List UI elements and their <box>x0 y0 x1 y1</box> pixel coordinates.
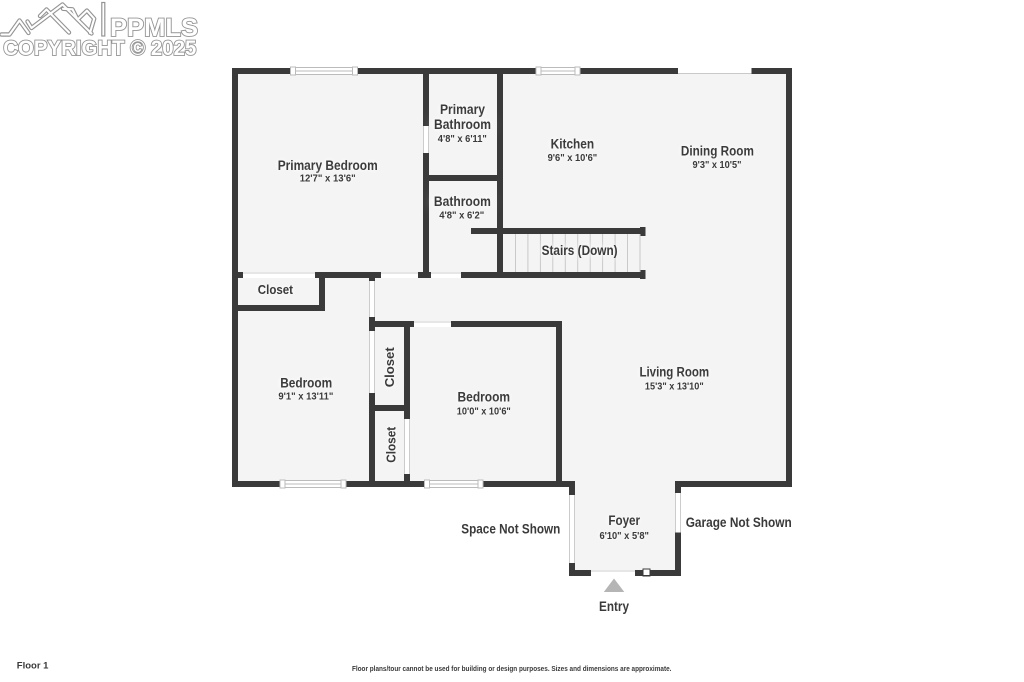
svg-text:6'10" x 5'8": 6'10" x 5'8" <box>599 531 649 542</box>
svg-text:Bedroom: Bedroom <box>280 376 332 391</box>
svg-text:Primary Bedroom: Primary Bedroom <box>278 158 378 173</box>
svg-text:Bathroom: Bathroom <box>434 194 491 209</box>
svg-text:9'6" x 10'6": 9'6" x 10'6" <box>548 153 598 164</box>
svg-text:15'3" x 13'10": 15'3" x 13'10" <box>645 382 704 393</box>
svg-text:COPYRIGHT © 2025: COPYRIGHT © 2025 <box>3 37 196 60</box>
svg-text:Closet: Closet <box>382 347 397 388</box>
svg-text:4'8" x 6'2": 4'8" x 6'2" <box>439 211 484 222</box>
svg-text:Bedroom: Bedroom <box>458 390 511 405</box>
svg-text:9'3" x 10'5": 9'3" x 10'5" <box>693 160 742 171</box>
svg-text:Floor 1: Floor 1 <box>17 661 49 672</box>
svg-text:Dining Room: Dining Room <box>681 144 754 159</box>
svg-text:Closet: Closet <box>383 426 398 463</box>
svg-text:Kitchen: Kitchen <box>551 136 595 151</box>
svg-text:Primary: Primary <box>440 102 485 117</box>
svg-text:Closet: Closet <box>258 282 294 297</box>
svg-text:Bathroom: Bathroom <box>434 117 491 132</box>
svg-text:Stairs (Down): Stairs (Down) <box>542 243 618 258</box>
svg-text:Entry: Entry <box>599 599 629 614</box>
svg-text:Foyer: Foyer <box>608 513 640 528</box>
svg-text:4'8" x 6'11": 4'8" x 6'11" <box>438 134 487 145</box>
svg-text:Space Not Shown: Space Not Shown <box>461 522 560 537</box>
svg-text:9'1" x 13'11": 9'1" x 13'11" <box>278 392 333 403</box>
svg-text:12'7" x 13'6": 12'7" x 13'6" <box>300 174 356 185</box>
svg-text:Floor plans/tour cannot be use: Floor plans/tour cannot be used for buil… <box>352 666 672 673</box>
svg-text:10'0" x 10'6": 10'0" x 10'6" <box>457 406 511 417</box>
svg-text:Garage Not Shown: Garage Not Shown <box>686 515 792 530</box>
svg-text:Living Room: Living Room <box>639 365 709 380</box>
